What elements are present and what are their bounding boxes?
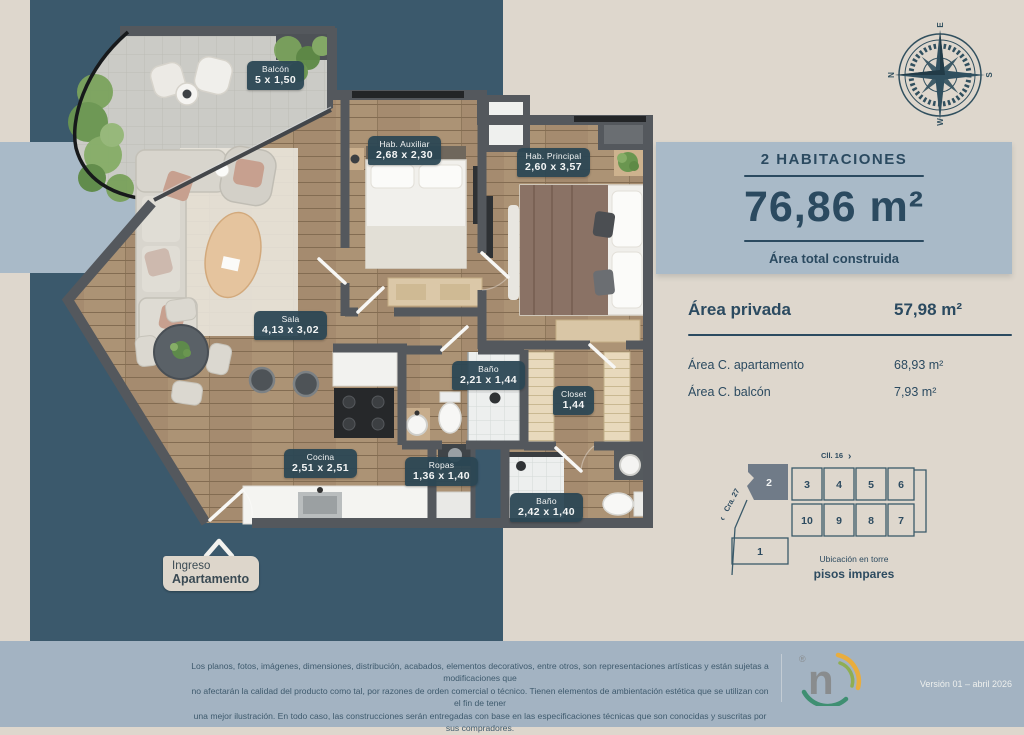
total-area-value: 76,86 m²: [744, 184, 924, 233]
room-label-cocina: Cocina2,51 x 2,51: [284, 449, 357, 478]
svg-text:W: W: [936, 118, 945, 126]
street-arrow-icon: ‹: [717, 515, 728, 523]
counter: [333, 352, 397, 386]
svg-text:9: 9: [836, 515, 842, 527]
stove: [334, 388, 394, 438]
footer-divider: [781, 654, 782, 702]
svg-text:4: 4: [836, 479, 842, 491]
room-label-balcon: Balcón5 x 1,50: [247, 61, 304, 90]
window: [352, 91, 464, 98]
svg-text:6: 6: [898, 479, 904, 491]
divider: [744, 175, 924, 177]
duct-void: [473, 445, 504, 525]
room-label-hab-auxiliar: Hab. Auxiliar2,68 x 2,30: [368, 136, 441, 165]
room-label-hab-principal: Hab. Principal2,60 x 3,57: [517, 148, 590, 177]
private-area-row: Área privada 57,98 m²: [688, 300, 1012, 320]
svg-text:8: 8: [868, 515, 874, 527]
svg-text:N: N: [888, 72, 896, 78]
svg-text:5: 5: [868, 479, 874, 491]
tower-caption: Ubicación en torre: [820, 554, 889, 564]
svg-text:3: 3: [804, 479, 810, 491]
tv: [486, 196, 493, 258]
wardrobe: [528, 352, 554, 442]
svg-text:7: 7: [898, 515, 904, 527]
sink: [620, 455, 640, 475]
svg-text:E: E: [936, 22, 945, 28]
apartment-area-row: Área C. apartamento 68,93 m²: [688, 358, 1012, 372]
summary-panel: 2 HABITACIONES 76,86 m² Área total const…: [656, 142, 1012, 274]
street-label-top: Cll. 16: [821, 451, 843, 460]
svg-text:n: n: [808, 656, 834, 703]
areas-table: Área privada 57,98 m² Área C. apartament…: [688, 300, 1012, 412]
compass-rose-icon: N E S W: [888, 22, 992, 126]
room-label-closet: Closet1,44: [553, 386, 594, 415]
divider: [744, 240, 924, 242]
svg-text:2: 2: [766, 477, 772, 489]
balcony-area-row: Área C. balcón 7,93 m²: [688, 385, 1012, 399]
room-label-sala: Sala4,13 x 3,02: [254, 311, 327, 340]
version-label: Versión 01 – abril 2026: [890, 679, 1012, 689]
bench: [508, 205, 519, 300]
toilet: [440, 392, 460, 402]
tower-location-diagram: 2 3 4 5 6 10 9 8 7 1 Cll. 16 › ‹ Cra. 27…: [702, 442, 1012, 592]
room-label-ropas: Ropas1,36 x 1,40: [405, 457, 478, 486]
svg-text:1: 1: [757, 546, 763, 558]
window: [574, 116, 646, 122]
svg-text:S: S: [985, 72, 992, 78]
tower-caption-bold: pisos impares: [814, 567, 895, 581]
bedrooms-title: 2 HABITACIONES: [761, 151, 908, 168]
sink: [407, 415, 427, 435]
stool: [294, 372, 318, 396]
divider: [688, 334, 1012, 336]
entrance-label: Ingreso Apartamento: [163, 556, 259, 591]
room-label-bano-1: Baño2,21 x 1,44: [452, 361, 525, 390]
svg-text:10: 10: [801, 515, 813, 527]
laundry-sink: [436, 492, 472, 521]
wardrobe: [604, 352, 630, 442]
svg-text:®: ®: [799, 654, 806, 664]
disclaimer-text: Los planos, fotos, imágenes, dimensiones…: [190, 660, 770, 735]
entrance-arrow-icon: [206, 541, 232, 556]
street-arrow-icon: ›: [848, 451, 851, 462]
room-label-bano-2: Baño2,42 x 1,40: [510, 493, 583, 522]
dresser: [556, 320, 640, 342]
total-area-caption: Área total construida: [769, 251, 899, 266]
brand-logo: n ®: [794, 648, 868, 706]
street-label-left: Cra. 27: [722, 487, 742, 513]
stool: [250, 368, 274, 392]
